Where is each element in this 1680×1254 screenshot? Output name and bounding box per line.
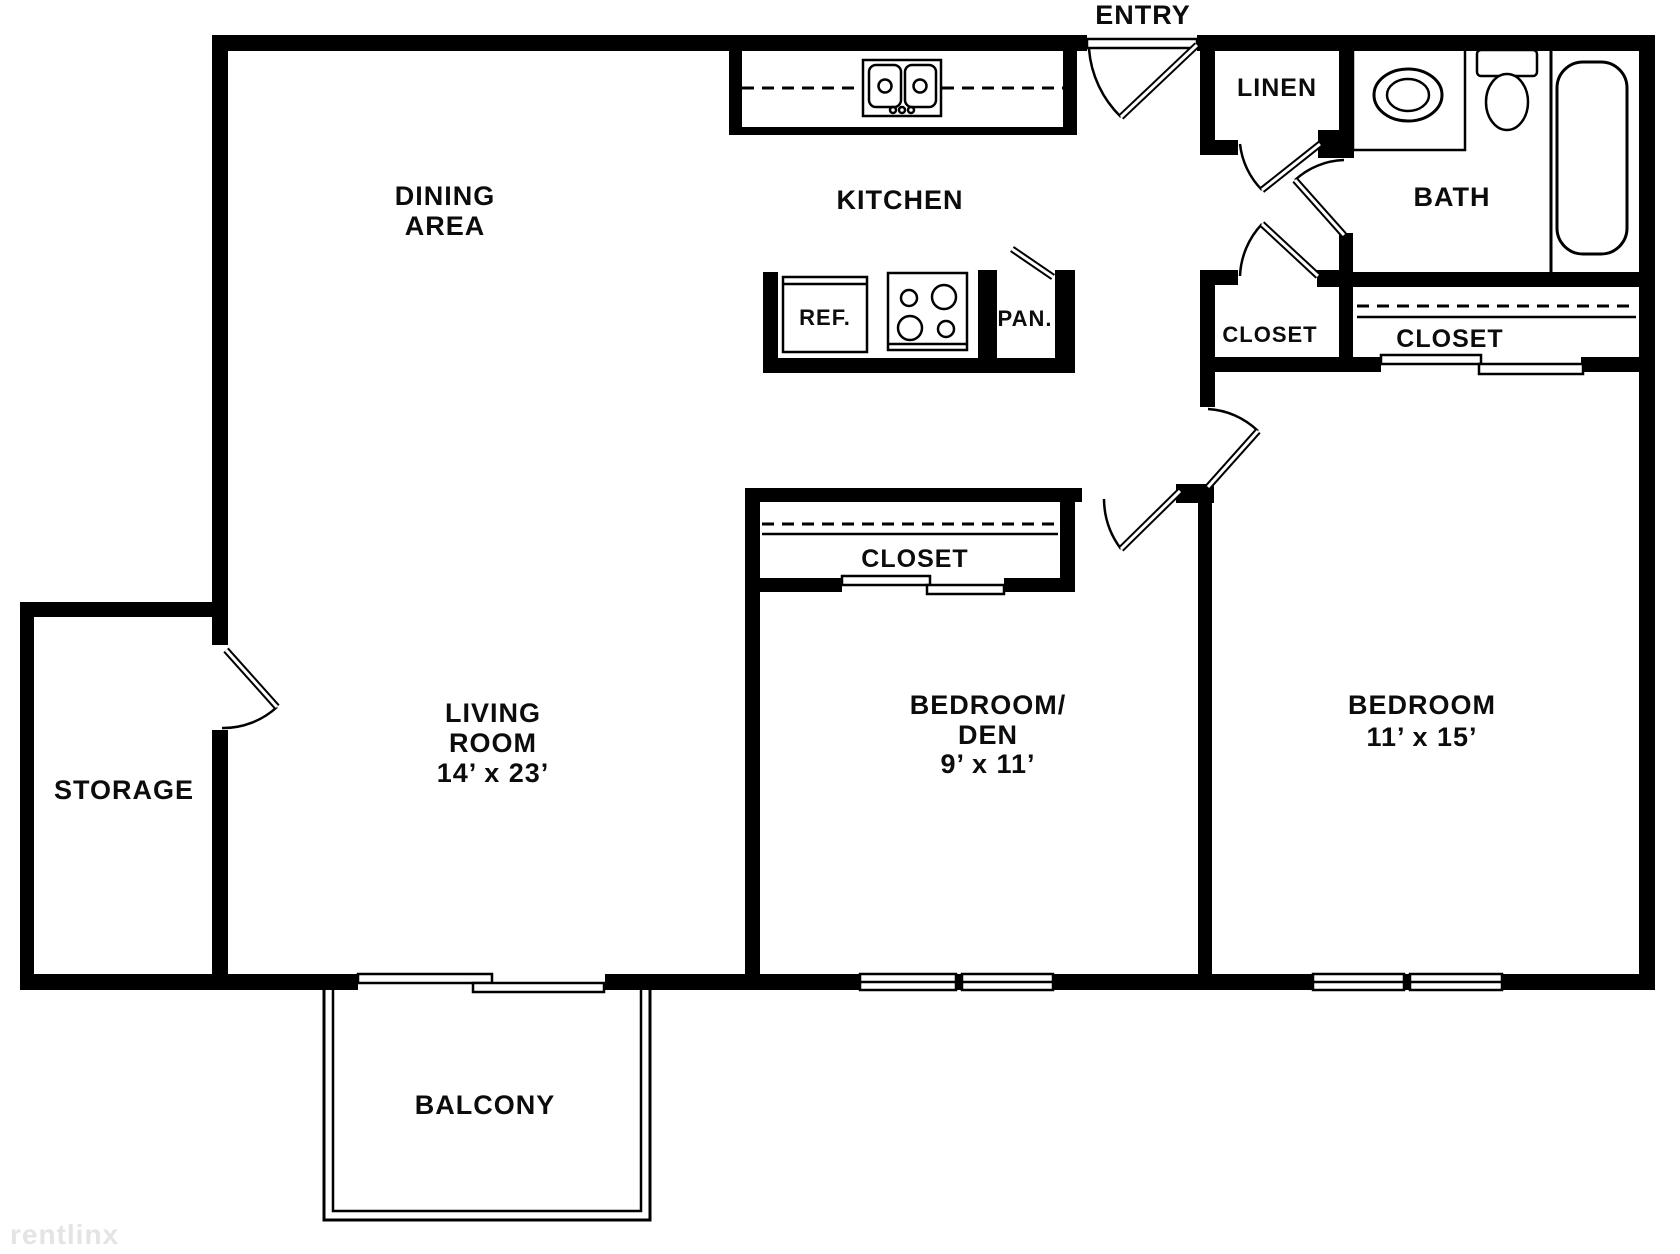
den-closet-label: CLOSET bbox=[861, 545, 968, 573]
rentlinx-watermark: rentlinx bbox=[10, 1219, 119, 1250]
wall-hallcloset-bottom bbox=[1200, 357, 1353, 372]
den-closet-slider-1 bbox=[842, 576, 930, 585]
living-label-line1: LIVING bbox=[445, 698, 541, 728]
wall-dencloset-bottom-left bbox=[745, 578, 842, 592]
living-label-line2: ROOM bbox=[449, 728, 537, 758]
refrigerator: REF. bbox=[783, 277, 867, 352]
entry-threshold bbox=[1087, 39, 1197, 48]
bedroom-closet-slider-1 bbox=[1381, 355, 1481, 364]
kitchen-sink bbox=[863, 60, 941, 116]
wall-bottom-c bbox=[1053, 974, 1313, 990]
wall-bedcloset-bottom-right bbox=[1581, 357, 1655, 372]
bath-label: BATH bbox=[1414, 182, 1491, 212]
bedroom-closet-slider-2 bbox=[1479, 364, 1583, 374]
bedroom-den-dims: 9’ x 11’ bbox=[940, 749, 1035, 779]
wall-dencloset-bottom-right bbox=[1004, 578, 1075, 592]
dining-label-line1: DINING bbox=[395, 181, 496, 211]
wall-right bbox=[1639, 35, 1655, 990]
wall-dencloset-right bbox=[1060, 488, 1075, 592]
wall-dencloset-top bbox=[745, 488, 1082, 502]
wall-counter-bottom bbox=[729, 127, 1077, 135]
balcony-label: BALCONY bbox=[415, 1090, 556, 1120]
wall-stub-below-hallcloset bbox=[1200, 372, 1215, 407]
wall-hall-post-upper bbox=[1318, 130, 1354, 158]
bedroom-den-label-line1: BEDROOM/ bbox=[910, 690, 1067, 720]
wall-den-bedroom bbox=[1198, 487, 1212, 974]
wall-storage-left bbox=[20, 602, 34, 990]
wall-counter-right bbox=[1063, 49, 1077, 135]
wall-bottom-b bbox=[605, 974, 860, 990]
wall-pantry-mid bbox=[978, 270, 997, 358]
den-window-2 bbox=[962, 974, 1053, 990]
wall-hallcloset-left bbox=[1200, 270, 1215, 372]
stove bbox=[888, 273, 967, 350]
wall-pantry-right bbox=[1055, 270, 1075, 358]
kitchen-label: KITCHEN bbox=[837, 185, 964, 215]
balcony-slider-2 bbox=[473, 983, 604, 992]
bedroom-window-1 bbox=[1313, 974, 1404, 990]
wall-left-lower bbox=[212, 730, 228, 975]
wall-linen-bottom bbox=[1200, 140, 1238, 155]
den-closet-slider-2 bbox=[927, 585, 1004, 594]
bedroom-den-label-line2: DEN bbox=[958, 720, 1018, 750]
wall-bedcloset-bottom-left bbox=[1339, 357, 1381, 372]
toilet-tank bbox=[1477, 50, 1537, 76]
pantry-label: PAN. bbox=[998, 306, 1053, 331]
living-dims: 14’ x 23’ bbox=[437, 758, 550, 788]
wall-counter-left bbox=[729, 49, 742, 135]
floor-plan: REF. PAN. bbox=[0, 0, 1680, 1254]
wall-top-left bbox=[212, 35, 1087, 51]
refrigerator-label: REF. bbox=[799, 305, 851, 330]
wall-bottom-a bbox=[20, 974, 358, 990]
wall-bottom-d bbox=[1502, 974, 1655, 990]
linen-label: LINEN bbox=[1237, 74, 1317, 102]
hall-closet-label: CLOSET bbox=[1222, 322, 1317, 347]
wall-pantry-bottom bbox=[763, 358, 1075, 373]
wall-living-den bbox=[745, 488, 760, 974]
dining-label-line2: AREA bbox=[405, 211, 486, 241]
storage-label: STORAGE bbox=[54, 775, 194, 805]
wall-storage-top bbox=[20, 602, 228, 617]
wall-bath-left-upper bbox=[1339, 49, 1353, 134]
toilet-bowl bbox=[1486, 74, 1528, 130]
entry-label: ENTRY bbox=[1095, 0, 1191, 30]
wall-bath-bottom bbox=[1339, 272, 1655, 287]
wall-pantry-left bbox=[763, 272, 778, 373]
wall-linen-left bbox=[1200, 49, 1215, 155]
den-window-1 bbox=[860, 974, 956, 990]
bedroom-dims: 11’ x 15’ bbox=[1366, 722, 1477, 752]
bedroom-label: BEDROOM bbox=[1348, 690, 1496, 720]
stove-outline bbox=[888, 273, 967, 350]
bedroom-window-2 bbox=[1410, 974, 1502, 990]
wall-hallcloset-right bbox=[1339, 270, 1353, 372]
balcony-slider-1 bbox=[358, 974, 492, 983]
bedroom-closet-label: CLOSET bbox=[1396, 325, 1503, 353]
wall-left-upper bbox=[212, 35, 228, 645]
